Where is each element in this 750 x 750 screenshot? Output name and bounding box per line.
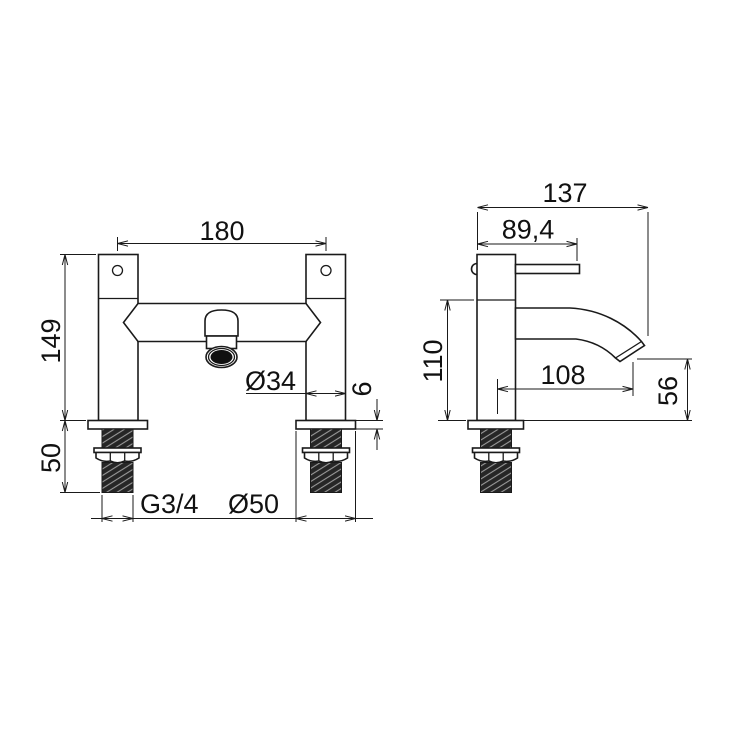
front-left-pillar bbox=[99, 255, 139, 421]
dim-d50-label: Ø50 bbox=[228, 489, 279, 519]
side-shank bbox=[473, 429, 520, 493]
front-spout-outlet-bore bbox=[211, 350, 233, 364]
side-body bbox=[477, 255, 516, 421]
dim-body-height: 149 bbox=[36, 255, 96, 421]
side-view: 137 89,4 110 108 56 bbox=[418, 178, 692, 493]
dim-50-label: 50 bbox=[36, 443, 66, 473]
front-left-flange bbox=[88, 421, 148, 430]
side-handle-lever bbox=[516, 265, 580, 274]
front-left-shank bbox=[94, 429, 141, 493]
dim-108-label: 108 bbox=[540, 360, 585, 390]
front-view: 180 149 50 Ø34 6 bbox=[36, 216, 383, 522]
side-spout bbox=[516, 308, 645, 362]
dim-thread-length: 50 bbox=[36, 421, 100, 493]
front-spout-housing bbox=[205, 310, 238, 336]
dim-180-label: 180 bbox=[199, 216, 244, 246]
dim-g34-label: G3/4 bbox=[140, 489, 199, 519]
front-right-pillar bbox=[306, 255, 346, 421]
dim-56-label: 56 bbox=[653, 376, 683, 406]
backnut bbox=[475, 453, 518, 463]
backnut bbox=[305, 453, 348, 463]
front-right-shank bbox=[303, 429, 350, 493]
dim-spout-reach: 108 bbox=[498, 360, 634, 414]
dim-137-label: 137 bbox=[542, 178, 587, 208]
front-right-flange bbox=[296, 421, 356, 430]
dim-110-label: 110 bbox=[418, 339, 448, 382]
dim-149-label: 149 bbox=[36, 318, 66, 363]
dim-base-thickness: 6 bbox=[347, 381, 383, 450]
dim-height-under-body: 110 bbox=[418, 300, 474, 421]
technical-drawing-page: 180 149 50 Ø34 6 bbox=[0, 0, 750, 750]
bath-tap-dimension-drawing: 180 149 50 Ø34 6 bbox=[0, 0, 750, 750]
dim-894-label: 89,4 bbox=[502, 215, 555, 245]
side-flange bbox=[468, 421, 524, 430]
backnut bbox=[96, 453, 139, 463]
dim-hole-centres: 180 bbox=[118, 216, 327, 251]
dim-d34-label: Ø34 bbox=[245, 366, 296, 396]
dim-6-label: 6 bbox=[347, 381, 377, 396]
